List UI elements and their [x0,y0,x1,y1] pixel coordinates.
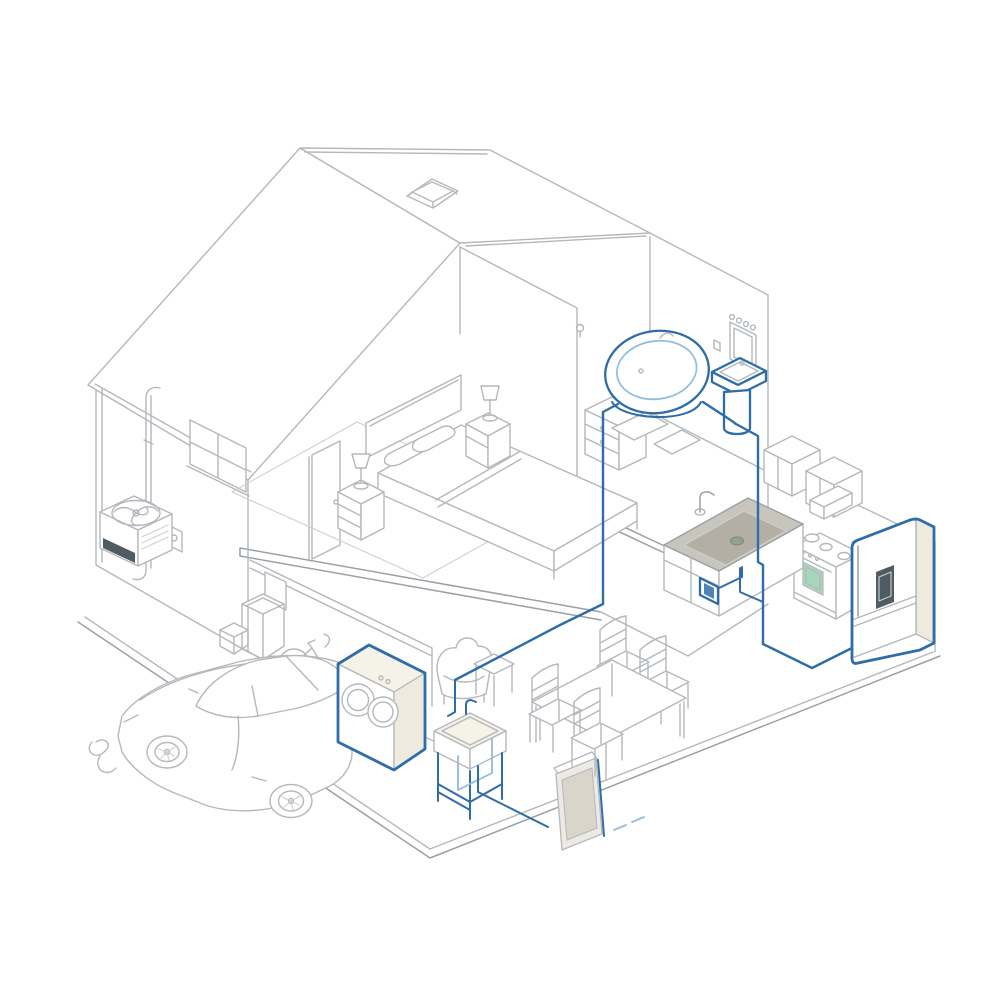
refrigerator [852,518,934,663]
main-floor-pipe [455,604,603,680]
utility-faucet [466,700,476,714]
canvas [0,0,1000,1000]
kitchen-sink-counter [664,492,803,616]
kitchen [664,436,934,663]
nightstand-left [338,454,384,540]
pedestal-sink [712,358,766,434]
utility-sink [434,700,548,827]
trash-cans [220,594,284,660]
kitchen-faucet [695,492,714,515]
car-front-wheel [147,736,187,768]
dining-area [529,616,689,780]
car-rear-wheel [270,785,312,818]
garage-hose [89,740,116,773]
pipe-dashes [614,817,644,830]
wall-heater-panel [554,752,644,850]
living-area [437,638,514,706]
bedroom-door [309,441,340,561]
sink-drain [731,537,744,545]
fridge-dispenser [876,565,894,609]
pipe-to-fridge [763,644,852,668]
light-switch [714,340,720,351]
sink-pedestal [724,390,750,434]
ac-condenser-unit [100,496,172,566]
isometric-house-cutaway [0,0,1000,1000]
nightstand-right [466,386,510,468]
living-armchair [437,638,492,704]
